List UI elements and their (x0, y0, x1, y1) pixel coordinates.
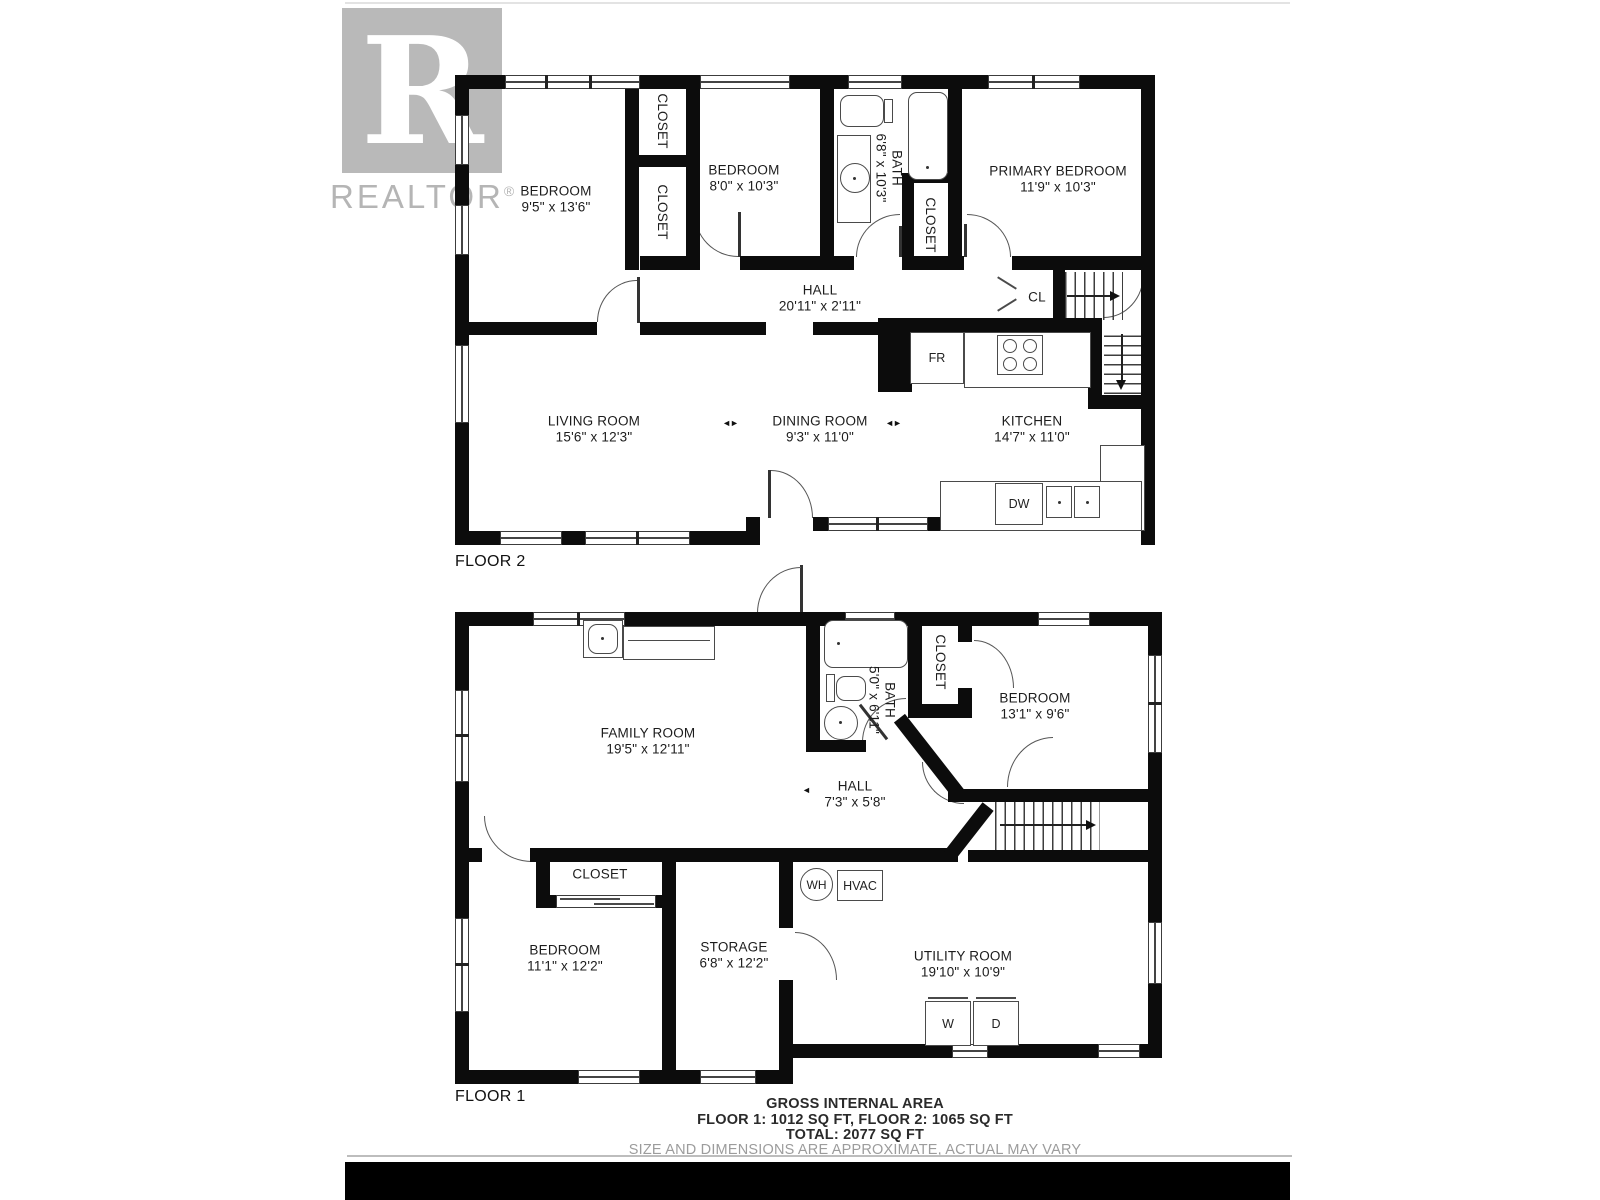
stair-arrow-icon (1110, 291, 1120, 301)
wall (806, 740, 866, 752)
window (505, 75, 640, 89)
room-label-family: FAMILY ROOM19'5" x 12'11" (601, 726, 696, 757)
wall (686, 89, 700, 270)
opening-marker: ◄► (722, 418, 738, 428)
wall (662, 848, 676, 1084)
window (700, 75, 790, 89)
footer-floor-areas: FLOOR 1: 1012 SQ FT, FLOOR 2: 1065 SQ FT (697, 1112, 1013, 1128)
appliance-top-line (976, 997, 1016, 999)
window-mullion (545, 75, 548, 89)
burner-icon (1003, 339, 1017, 353)
door-leaf (738, 212, 741, 257)
realtor-watermark: REALTOR® (330, 178, 517, 216)
door-arc-bedroom2 (694, 212, 738, 257)
bottom-black-bar (345, 1162, 1290, 1200)
footer-total-area: TOTAL: 2077 SQ FT (786, 1127, 924, 1143)
footer-gross-area: GROSS INTERNAL AREA (766, 1096, 944, 1112)
bifold-door (997, 298, 1017, 311)
wall (910, 318, 1102, 332)
footer-divider (347, 1155, 1292, 1157)
top-divider (345, 2, 1290, 4)
wall (676, 848, 958, 862)
hvac-box: HVAC (837, 870, 883, 901)
wall (1005, 789, 1019, 802)
room-label-utility: UTILITY ROOM19'10" x 10'9" (914, 949, 1012, 980)
stairs (995, 802, 1100, 850)
window (952, 1044, 988, 1058)
window-mullion (589, 75, 592, 89)
floor1-label: FLOOR 1 (455, 1088, 526, 1106)
dishwasher-box: DW (995, 483, 1043, 525)
window (578, 1070, 640, 1084)
wall (455, 848, 482, 862)
window (455, 345, 469, 423)
fridge-label: FR (929, 351, 946, 365)
hvac-label: HVAC (843, 879, 877, 893)
drain-dot (1086, 501, 1089, 504)
wall (740, 256, 820, 270)
wall (455, 322, 597, 335)
wall (948, 89, 962, 270)
window-mullion (455, 963, 469, 966)
room-label-bedroom1: BEDROOM9'5" x 13'6" (520, 184, 591, 215)
wall (779, 848, 793, 928)
window (500, 531, 562, 545)
water-heater-icon: WH (800, 868, 833, 901)
room-label-bedroom2: BEDROOM8'0" x 10'3" (708, 163, 779, 194)
window (1148, 922, 1162, 984)
room-label-bedroom-left: BEDROOM11'1" x 12'2" (527, 943, 603, 974)
appliance-top-line (928, 997, 968, 999)
sliding-door-track (594, 903, 654, 905)
wall (958, 688, 972, 718)
drain-dot (1058, 501, 1061, 504)
room-label-hall2: HALL20'11" x 2'11" (779, 283, 861, 314)
registered-mark: ® (504, 183, 517, 199)
window-mullion (876, 517, 879, 531)
wall (779, 980, 793, 1084)
window (1098, 1044, 1140, 1058)
wall (820, 89, 834, 270)
stair-arrow-icon (1086, 820, 1096, 830)
drain-dot (853, 177, 856, 180)
drain-dot (837, 642, 840, 645)
dryer-label: D (991, 1017, 1000, 1031)
wall (948, 789, 1148, 802)
counter-line (628, 640, 710, 641)
stair-arrow-line (1067, 295, 1111, 297)
window (455, 205, 469, 255)
sliding-closet-door (556, 895, 656, 908)
pointer-marker: ◄ (802, 785, 810, 795)
window-mullion (636, 531, 639, 545)
floor-plan-canvas: R REALTOR® (0, 0, 1600, 1200)
wall (625, 89, 639, 270)
room-label-closet-mid: CLOSET (654, 184, 670, 239)
drain-dot (839, 721, 842, 724)
wall (746, 517, 760, 545)
door-arc-patio (771, 470, 813, 518)
burner-icon (1023, 339, 1037, 353)
room-label-closet-top: CLOSET (654, 93, 670, 148)
wall (530, 848, 676, 862)
window (700, 1070, 756, 1084)
drain-dot (601, 637, 604, 640)
wall (878, 318, 912, 392)
floor2-label: FLOOR 2 (455, 553, 526, 571)
wall (806, 612, 820, 752)
toilet-tank (826, 674, 835, 702)
room-label-closet-right: CLOSET (932, 634, 948, 689)
window-mullion (1148, 702, 1162, 705)
door-arc-closet-right (974, 640, 1014, 688)
sliding-door-track (560, 898, 620, 900)
wetbar-counter (623, 626, 715, 660)
door-arc-primary (967, 214, 1011, 257)
toilet-icon (836, 676, 866, 701)
wall (640, 256, 690, 270)
door-arc-storage (795, 932, 837, 980)
burner-icon (1003, 357, 1017, 371)
room-label-hall1: HALL7'3" x 5'8" (824, 779, 885, 810)
wall (958, 612, 972, 642)
room-label-living: LIVING ROOM15'6" x 12'3" (548, 414, 640, 445)
entry-door-arc (757, 567, 801, 613)
realtor-watermark-text: REALTOR (330, 178, 504, 215)
door-arc-bedroom-right (1007, 737, 1053, 787)
washer-box: W (925, 1001, 971, 1046)
wall (1088, 395, 1141, 409)
realtor-logo-icon: R (342, 8, 502, 173)
window-mullion (455, 734, 469, 737)
room-label-bedroom-right: BEDROOM13'1" x 9'6" (999, 691, 1070, 722)
room-label-bath1: BATH5'0" x 6'11" (867, 666, 898, 734)
toilet-tank (884, 99, 893, 123)
wall (968, 850, 1148, 862)
stair-arrow-line (1121, 334, 1123, 380)
wall (640, 322, 766, 335)
stair-arrow-icon (1116, 380, 1126, 390)
opening-marker: ◄► (885, 418, 901, 428)
room-label-cl: CL (1028, 289, 1046, 305)
dryer-box: D (973, 1001, 1019, 1046)
stair-arrow-line (1000, 824, 1088, 826)
door-arc-bedroom-left (484, 816, 532, 862)
wall (820, 256, 854, 270)
room-label-bath2: BATH6'8" x 10'3" (874, 134, 905, 203)
fridge-box: FR (910, 332, 964, 384)
door-leaf (637, 277, 640, 323)
window (848, 75, 902, 89)
bifold-door (997, 276, 1017, 289)
toilet-icon (840, 95, 884, 127)
wall (902, 256, 964, 270)
washer-label: W (942, 1017, 954, 1031)
room-label-primary: PRIMARY BEDROOM11'9" x 10'3" (989, 164, 1127, 195)
wall (1012, 256, 1155, 270)
room-label-storage: STORAGE6'8" x 12'2" (700, 940, 769, 971)
dishwasher-label: DW (1009, 497, 1030, 511)
drain-dot (926, 166, 929, 169)
wall (1053, 270, 1065, 325)
wall (625, 155, 700, 167)
room-label-closet-left: CLOSET (572, 866, 627, 882)
door-arc-bedroom1 (597, 280, 637, 322)
window-mullion (1032, 75, 1035, 89)
burner-icon (1023, 357, 1037, 371)
wall (908, 612, 922, 712)
room-label-kitchen: KITCHEN14'7" x 11'0" (994, 414, 1070, 445)
wh-label: WH (807, 878, 827, 892)
room-label-dining: DINING ROOM9'3" x 11'0" (772, 414, 867, 445)
window (1038, 612, 1090, 626)
window (455, 115, 469, 165)
window-mullion (577, 612, 580, 626)
room-label-bath-closet: CLOSET (922, 197, 938, 252)
